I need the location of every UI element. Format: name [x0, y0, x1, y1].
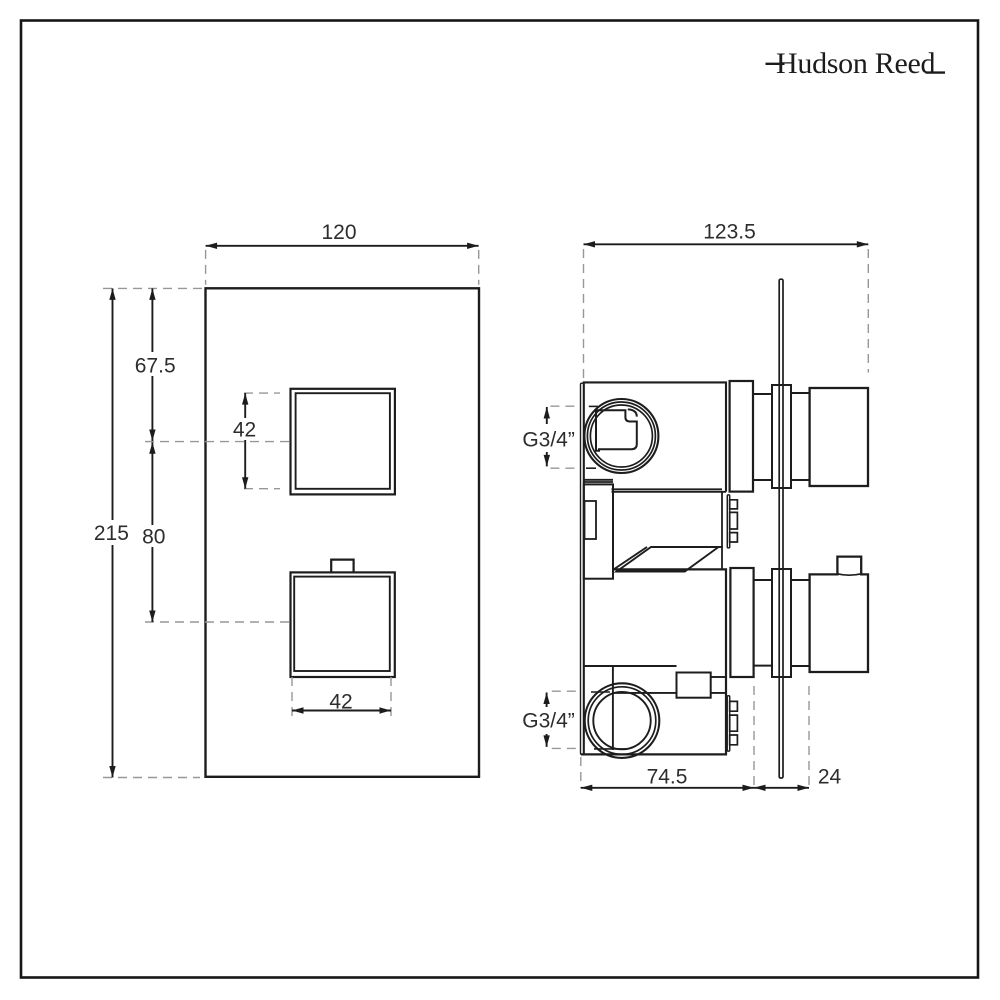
svg-text:67.5: 67.5 — [135, 354, 176, 377]
svg-text:42: 42 — [233, 419, 256, 442]
svg-text:Hudson Reed: Hudson Reed — [776, 47, 935, 80]
svg-text:120: 120 — [321, 221, 356, 244]
svg-text:80: 80 — [142, 525, 165, 548]
svg-text:123.5: 123.5 — [703, 221, 756, 244]
svg-text:42: 42 — [329, 691, 352, 714]
svg-text:74.5: 74.5 — [647, 766, 688, 789]
svg-text:24: 24 — [818, 766, 842, 789]
svg-text:G3/4”: G3/4” — [522, 710, 575, 733]
svg-text:215: 215 — [94, 522, 129, 545]
svg-text:G3/4”: G3/4” — [522, 429, 575, 452]
